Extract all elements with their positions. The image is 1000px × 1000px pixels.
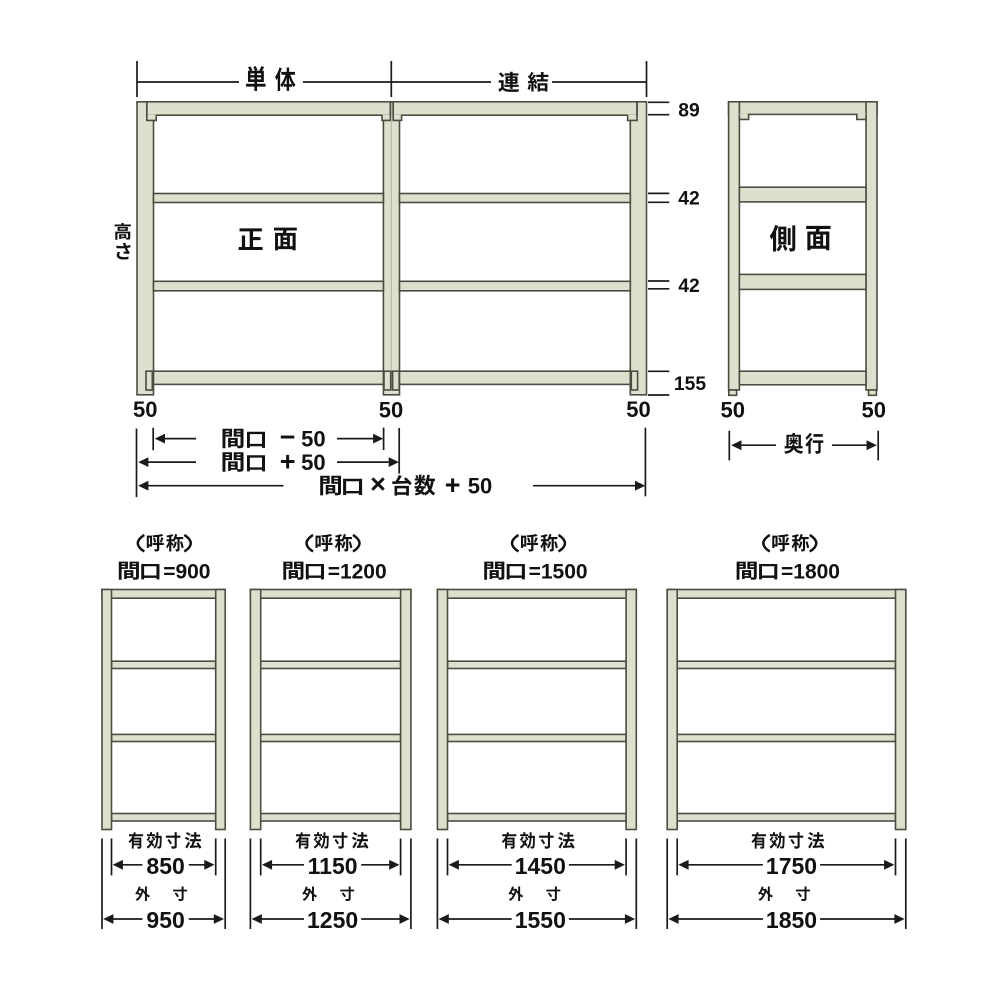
- svg-text:50: 50: [626, 397, 650, 422]
- svg-text:1250: 1250: [307, 907, 358, 933]
- svg-text:×: ×: [370, 469, 386, 499]
- svg-text:+: +: [445, 470, 461, 500]
- svg-text:950: 950: [146, 907, 184, 933]
- svg-text:89: 89: [678, 101, 699, 122]
- svg-text:50: 50: [301, 426, 325, 451]
- svg-text:42: 42: [678, 188, 699, 209]
- svg-text:=1200: =1200: [328, 560, 387, 583]
- svg-text:50: 50: [301, 450, 325, 475]
- svg-text:50: 50: [133, 397, 157, 422]
- svg-text:50: 50: [468, 474, 492, 499]
- svg-text:=1800: =1800: [781, 560, 840, 583]
- svg-text:50: 50: [721, 398, 745, 423]
- svg-text:1450: 1450: [515, 853, 566, 879]
- svg-text:=900: =900: [163, 560, 210, 583]
- svg-text:50: 50: [862, 398, 886, 423]
- svg-text:=1500: =1500: [529, 560, 588, 583]
- svg-text:+: +: [280, 446, 296, 476]
- svg-text:850: 850: [146, 853, 184, 879]
- svg-text:1550: 1550: [515, 907, 566, 933]
- svg-text:1850: 1850: [766, 907, 817, 933]
- svg-text:1750: 1750: [766, 853, 817, 879]
- svg-text:155: 155: [674, 374, 706, 395]
- svg-text:50: 50: [379, 398, 403, 423]
- svg-text:1150: 1150: [308, 853, 358, 879]
- svg-text:42: 42: [678, 276, 699, 297]
